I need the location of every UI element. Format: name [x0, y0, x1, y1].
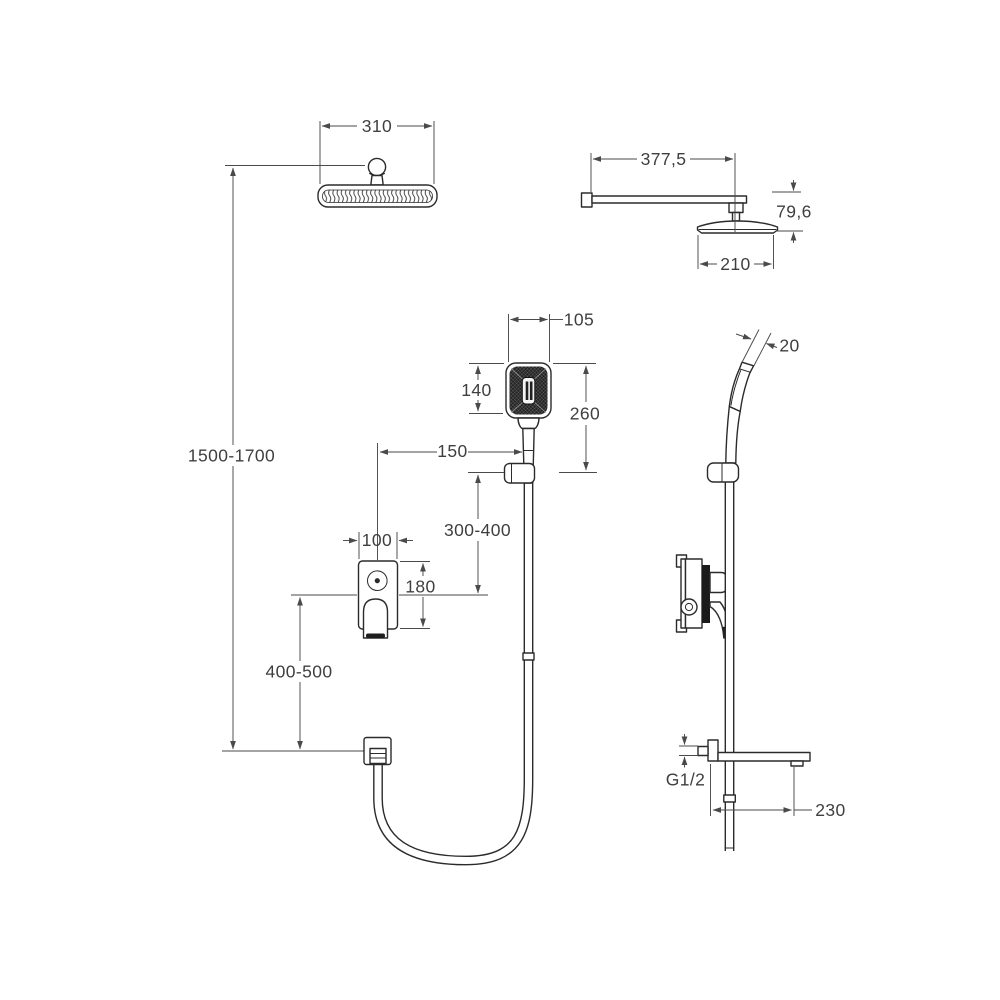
outlet-spout-side-view: [698, 740, 810, 766]
outlet-connector: [370, 749, 386, 764]
trim-knob-side: [710, 573, 727, 593]
overhead-shower-side-view: [582, 193, 778, 233]
mixer-lever-tip: [366, 634, 385, 639]
face-center-pill: [522, 378, 535, 405]
dim-377-5: 377,5: [591, 149, 735, 232]
dim-310-label: 310: [362, 116, 392, 136]
pill-bar: [526, 382, 529, 401]
pill-bar: [530, 382, 533, 401]
wall-outlet-front: [364, 738, 391, 765]
dim-260: 260: [553, 364, 600, 473]
dim-210-label: 210: [720, 254, 750, 274]
spout-nozzle: [791, 761, 803, 766]
handshower-handle-side: [726, 407, 740, 464]
shower-arm: [592, 196, 747, 203]
g-half-nipple: [698, 747, 708, 756]
ball-neck: [371, 176, 383, 186]
outlet-plate-side: [708, 740, 718, 761]
dim-1500-1700-label: 1500-1700: [188, 446, 275, 466]
inlet-pipe: [681, 599, 697, 615]
dim-g12: G1/2: [666, 734, 706, 790]
head-side-profile: [698, 221, 778, 233]
dim-180: 180: [400, 562, 436, 629]
dim-79-6-label: 79,6: [776, 202, 812, 222]
spout-bar: [718, 753, 810, 762]
dim-230-label: 230: [815, 800, 845, 820]
arm-neck: [733, 213, 740, 222]
dim-20: 20: [736, 330, 800, 367]
dim-g12-label: G1/2: [666, 770, 706, 790]
dim-140-label: 140: [461, 380, 491, 400]
side-profile-view: 20: [666, 330, 846, 852]
dim-260-label: 260: [570, 404, 600, 424]
dim-100-label: 100: [362, 530, 392, 550]
nozzle-band: [323, 190, 433, 203]
mixer-side-view: [677, 555, 729, 638]
hose-side-view: [724, 470, 736, 851]
dim-105: 105: [509, 310, 595, 363]
dim-400-500-label: 400-500: [265, 662, 332, 682]
dim-105-label: 105: [564, 310, 594, 330]
ball-joint: [368, 158, 385, 175]
hose-coupling: [523, 653, 534, 660]
technical-drawing-page: 310 377,5 79,6 210 1500-: [0, 0, 1000, 1000]
dim-180-label: 180: [405, 577, 435, 597]
arm-nut: [729, 203, 743, 213]
mixer-valve-dot: [375, 578, 380, 583]
wall-flange: [582, 193, 593, 207]
valve-body-side: [686, 559, 703, 628]
wall-section: [702, 565, 710, 623]
dim-20-label: 20: [779, 336, 799, 356]
mixer-lever: [364, 599, 388, 638]
dim-150-label: 150: [437, 441, 467, 461]
dim-100: 100: [343, 530, 413, 559]
dim-210: 210: [698, 235, 774, 274]
dim-79-6: 79,6: [772, 180, 812, 243]
shower-system-drawing: 310 377,5 79,6 210 1500-: [0, 0, 1000, 1000]
hose-coupling-side: [724, 795, 736, 802]
dim-140: 140: [461, 364, 504, 414]
hand-shower-side-view: [726, 362, 754, 463]
handshower-cone: [518, 418, 539, 429]
dim-300-400: 300-400: [444, 473, 511, 594]
hand-shower-front-view: [505, 363, 552, 483]
dim-150: 150: [380, 441, 522, 461]
dim-377-5-label: 377,5: [641, 149, 687, 169]
dim-300-400-label: 300-400: [444, 520, 511, 540]
handshower-holder: [505, 464, 535, 484]
holder-side-view: [708, 463, 739, 482]
